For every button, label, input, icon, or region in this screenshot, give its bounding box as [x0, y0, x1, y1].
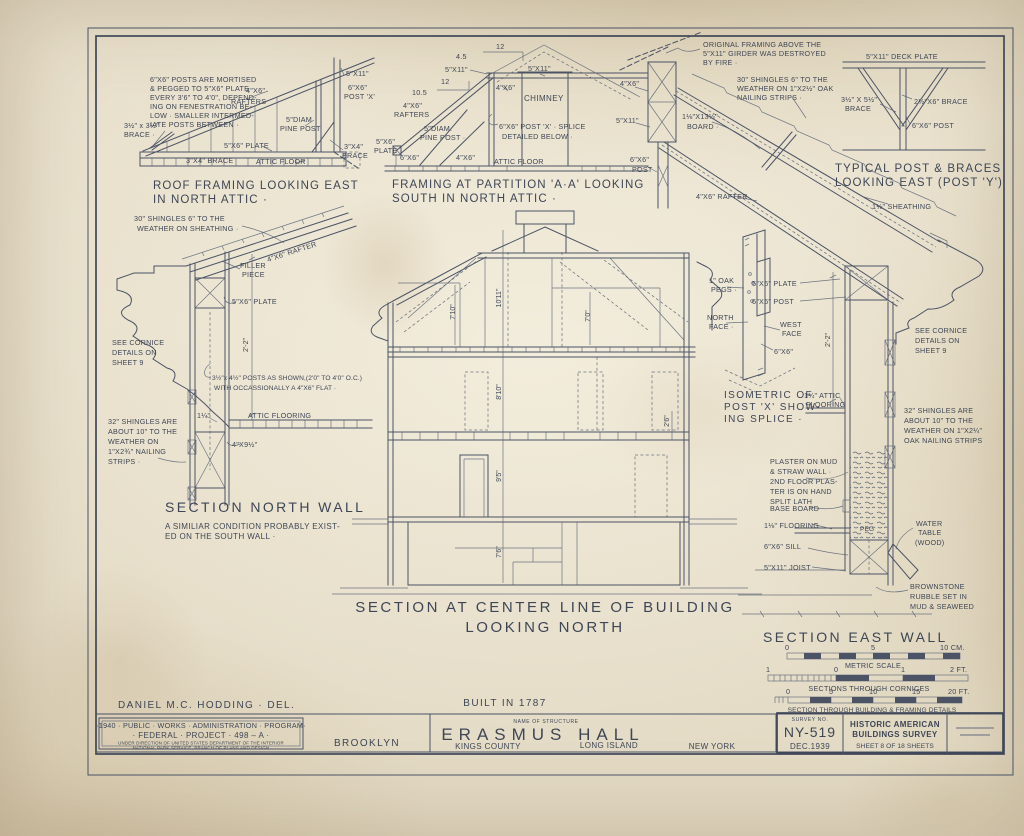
joist-label: 5"X11" JOIST [764, 563, 811, 572]
shingle-note: OAK NAILING STRIPS [904, 436, 982, 445]
pine-post-label: PINE POST · [420, 133, 465, 142]
post-label: 6"X6" [630, 155, 649, 164]
pegs-label: PEGS · [711, 285, 737, 294]
shingle-note: WEATHER ON 1"X2½" OAK [737, 84, 834, 93]
detail-caption: ING SPLICE · [724, 414, 803, 425]
built-date-label: BUILT IN 1787 [463, 698, 546, 709]
brace-label: 3½" X 5½" [841, 95, 877, 104]
pegs-label: 1" OAK [709, 276, 734, 285]
dimension-label: 2'-2" [243, 338, 250, 352]
survey-number: NY-519 [784, 724, 836, 740]
scale-tick: 0 [834, 665, 838, 674]
detail-caption: FRAMING AT PARTITION 'A·A' LOOKING [392, 179, 644, 191]
size-label: 6"X6" [774, 347, 793, 356]
brace-label: 2½"X6" BRACE [914, 97, 968, 106]
girder-label: 5"X11" [445, 65, 468, 74]
rafter-label: 4"X6" RAFTER [266, 239, 318, 264]
posts-note: 3½"x 4½" POSTS AS SHOWN,(2'0" TO 4'0" O.… [212, 374, 362, 382]
shingle-note: WEATHER ON [108, 437, 159, 446]
plate-label: PLATE · [374, 146, 402, 155]
dimension-label: 7'0" [585, 310, 592, 322]
project-line: · FEDERAL · PROJECT · 498 – A · [133, 731, 270, 740]
foundation-note: RUBBLE SET IN [910, 592, 967, 601]
shingle-note: WEATHER ON SHEATHING · [137, 224, 238, 233]
foundation-note: BROWNSTONE [910, 582, 965, 591]
plate-label: 5"X6" PLATE [232, 297, 277, 306]
drawing-sheet: 6"X6" POSTS ARE MORTISED & PEGGED TO 5"X… [0, 0, 1024, 836]
slope-rise: 10.5 [412, 88, 427, 97]
post-label: 6"X6" POST [912, 121, 954, 130]
chimney-label: CHIMNEY [524, 94, 564, 103]
shingle-note: ABOUT 10" TO THE [904, 416, 973, 425]
flooring-label: 1⅛" FLOORING [764, 521, 819, 530]
island-label: LONG ISLAND [580, 741, 638, 750]
detail-caption: TYPICAL POST & BRACES [835, 163, 1001, 175]
flooring-label: FLOORING [806, 400, 846, 409]
flooring-label: 1¼" ATTIC [804, 391, 841, 400]
brace-label: 3"X4" BRACE [186, 156, 233, 165]
foundation-note: MUD & SEAWEED [910, 602, 974, 611]
state-label: NEW YORK [689, 742, 736, 751]
detail-caption: ROOF FRAMING LOOKING EAST [153, 180, 359, 192]
baseboard-label: BASE BOARD [770, 504, 819, 513]
shingle-note: 32" SHINGLES ARE [904, 406, 973, 415]
slope-run: 12 [496, 42, 505, 51]
detail-caption: IN NORTH ATTIC · [153, 194, 268, 206]
roof-framing-detail: 6"X6" POSTS ARE MORTISED & PEGGED TO 5"X… [124, 58, 375, 206]
plaster-note: TER IS ON HAND [770, 487, 832, 496]
section-caption: LOOKING NORTH [465, 619, 624, 636]
plate-label: 5"X6" [376, 137, 395, 146]
center-section: 7'10" 10'11" 7'0" 8'10" 9'5" 7'6" 2'6" S… [332, 211, 762, 709]
drawing-canvas: 6"X6" POSTS ARE MORTISED & PEGGED TO 5"X… [0, 0, 1024, 836]
plaster-note: PLASTER ON MUD [770, 457, 837, 466]
flooring-dim: 1¼" [197, 411, 210, 420]
rafter-label: RAFTERS [394, 110, 429, 119]
shingle-note: WEATHER ON 1"X2¼" [904, 426, 983, 435]
pine-post-label: 5"DIAM [286, 115, 312, 124]
sheathing-label: 1⅛" SHEATHING [872, 202, 931, 211]
face-label: NORTH [707, 313, 734, 322]
dimension-label: 2'6" [664, 415, 671, 427]
fire-note: ORIGINAL FRAMING ABOVE THE [703, 40, 821, 49]
girder-label: 5"X11" [616, 116, 639, 125]
plaster-note: & STRAW WALL · [770, 467, 831, 476]
board-label: BOARD · [687, 122, 719, 131]
plate-label: 5"X6" PLATE [752, 279, 797, 288]
note-line: 6"X6" POSTS ARE MORTISED [150, 75, 256, 84]
shingle-note: ABOUT 10" TO THE [108, 427, 177, 436]
scale-tick: 2 FT. [950, 665, 967, 674]
dimension-label: 2'-2" [825, 333, 832, 347]
cornice-ref-note: SHEET 9 [915, 346, 947, 355]
scale-tick: 15 [912, 687, 921, 696]
scale-tick: 10 [869, 687, 878, 696]
deck-plate-label: 5"X11" DECK PLATE [866, 52, 938, 61]
cornice-ref-note: DETAILS ON [112, 348, 157, 357]
scale-tick: 0 [785, 643, 789, 652]
section-caption: SECTION EAST WALL [763, 629, 948, 645]
dimension-label: 9'5" [496, 470, 503, 482]
shingle-note: 1"X2¾" NAILING [108, 447, 166, 456]
cornice-ref-note: SEE CORNICE [915, 326, 967, 335]
shingle-note: 32" SHINGLES ARE [108, 417, 177, 426]
brace-label: BRACE [845, 104, 871, 113]
post-x-label: 6"X6" [348, 83, 367, 92]
shingle-note: 30" SHINGLES 6" TO THE [134, 214, 225, 223]
shingle-note: 30" SHINGLES 6" TO THE [737, 75, 828, 84]
partition-framing-detail: 4.5 12 10.5 12 5"X11" 5"X11" 4"X6" CHIMN… [374, 42, 648, 205]
water-table-label: TABLE [918, 528, 942, 537]
attic-floor-label: ATTIC FLOOR [256, 157, 306, 166]
scale-tick: 10 CM. [940, 643, 965, 652]
delineator-credit: DANIEL M.C. HODDING · DEL. [118, 700, 295, 711]
cornice-ref-note: SEE CORNICE [112, 338, 164, 347]
post-label: 6"X6" POST [752, 297, 794, 306]
scale-tick: 5 [829, 687, 833, 696]
rafter-label: 4"X6" [496, 83, 515, 92]
posts-note: WITH OCCASSIONALLY A 4"X6" FLAT · [214, 385, 336, 392]
girder-label: 5"X11" [346, 69, 369, 78]
pine-post-label: 5"DIAM. [424, 124, 452, 133]
post-label: 6"X6" [400, 153, 419, 162]
cornice-ref-note: DETAILS ON [915, 336, 960, 345]
dimension-label: 8'10" [496, 384, 503, 400]
plaster-note: 2ND FLOOR PLAS- [770, 477, 838, 486]
rafter-label: 4"X6" [403, 101, 422, 110]
survey-date: DEC.1939 [790, 742, 830, 751]
shingle-note: NAILING STRIPS · [737, 93, 802, 102]
brace-label: 3"X4" [344, 142, 363, 151]
plate-label: 5"X6" PLATE [224, 141, 269, 150]
habs-title: BUILDINGS SURVEY [852, 730, 938, 739]
joist-label: 4"X9½" [232, 440, 258, 449]
north-wall-section: 30" SHINGLES 6" TO THE WEATHER ON SHEATH… [108, 206, 372, 541]
scale-tick: 5 [871, 643, 875, 652]
face-label: FACE [782, 329, 802, 338]
detail-caption: SOUTH IN NORTH ATTIC · [392, 193, 557, 205]
splice-note: 6"X6" POST 'X' · SPLICE [499, 122, 586, 131]
brace-label: BRACE [342, 151, 368, 160]
beam-label: 4"X6" [620, 79, 639, 88]
survey-no-caption: SURVEY NO. [792, 717, 829, 723]
section-ca ption: SECTION NORTH WALL [165, 499, 365, 515]
splice-note: DETAILED BELOW · [502, 132, 573, 141]
note-line: LOW · SMALLER INTERMED- [150, 111, 254, 120]
attic-floor-label: ATTIC FLOOR [494, 157, 544, 166]
brace-label: 4"X6" [456, 153, 475, 162]
face-label: WEST [780, 320, 802, 329]
fire-note: BY FIRE · [703, 58, 737, 67]
dimension-label: 7'6" [496, 546, 503, 558]
sheet-number: SHEET 8 OF 18 SHEETS [856, 743, 934, 750]
section-caption: SECTION AT CENTER LINE OF BUILDING [355, 599, 735, 616]
rafter-label: RAFTERS [231, 97, 266, 106]
detail-caption: ISOMETRIC OF [724, 390, 813, 401]
scale-tick: 1 [901, 665, 905, 674]
brace-label: BRACE · [124, 130, 155, 139]
section-subnote: A SIMILIAR CONDITION PROBABLY EXIST- [165, 522, 340, 531]
note-line: IATE POSTS BETWEEN · [150, 120, 239, 129]
slope-rise: 4.5 [456, 52, 467, 61]
cornice-ref-note: SHEET 9 [112, 358, 144, 367]
slope-run: 12 [441, 77, 450, 86]
rafter-label: 4"X6" [246, 86, 265, 95]
project-line: ·1940 · PUBLIC · WORKS · ADMINISTRATION … [96, 721, 306, 730]
fire-note: 5"X11" GIRDER WAS DESTROYED [703, 49, 826, 58]
county-label: KINGS COUNTY [455, 742, 521, 751]
sill-label: 6"X6" SILL [764, 542, 801, 551]
post-label: POST [632, 165, 653, 174]
dimension-label: 7'10" [450, 304, 457, 320]
filler-label: FILLER [240, 261, 266, 270]
scale-tick: 20 FT. [948, 687, 969, 696]
section-subnote: ED ON THE SOUTH WALL · [165, 532, 276, 541]
board-label: 1⅛"X13½" [682, 112, 718, 121]
dimension-label: 10'11" [496, 288, 503, 307]
post-y-detail: 5"X11" DECK PLATE 3½" X 5½" BRACE 2½"X6"… [835, 52, 1003, 189]
water-table-label: (WOOD) [915, 538, 944, 547]
rafter-label: 4"X6" RAFTER [696, 192, 748, 201]
face-label: FACE · [709, 322, 734, 331]
borough-label: BROOKLYN [334, 738, 400, 749]
girder-label: 5"X11" [528, 64, 551, 73]
scale-tick: 1 [766, 665, 770, 674]
water-table-label: WATER [916, 519, 942, 528]
note-line: & PEGGED TO 5"X6" PLATE [150, 84, 249, 93]
shingle-note: STRIPS · [108, 457, 140, 466]
flooring-label: ATTIC FLOORING [248, 411, 311, 420]
scale-tick: 0 [786, 687, 790, 696]
peg-label: PEG [860, 526, 874, 533]
habs-title: HISTORIC AMERICAN [850, 720, 940, 729]
scale-bars: 0 5 10 CM. METRIC SCALE 1 0 1 2 FT. SECT… [766, 643, 969, 714]
detail-caption: LOOKING EAST (POST 'Y') [835, 177, 1003, 189]
scale-label: METRIC SCALE [845, 661, 901, 670]
pine-post-label: PINE POST [280, 124, 321, 133]
project-line: NATIONAL PARK SERVICE, BRANCH OF PLANS A… [133, 746, 270, 751]
brace-label: 3½" x 3½" [124, 121, 159, 130]
east-wall-section: 5"X6" PLATE 6"X6" POST 2'-2" 1¼" ATTIC F… [738, 233, 983, 645]
filler-label: PIECE [242, 270, 265, 279]
post-x-label: POST 'X' [344, 92, 375, 101]
